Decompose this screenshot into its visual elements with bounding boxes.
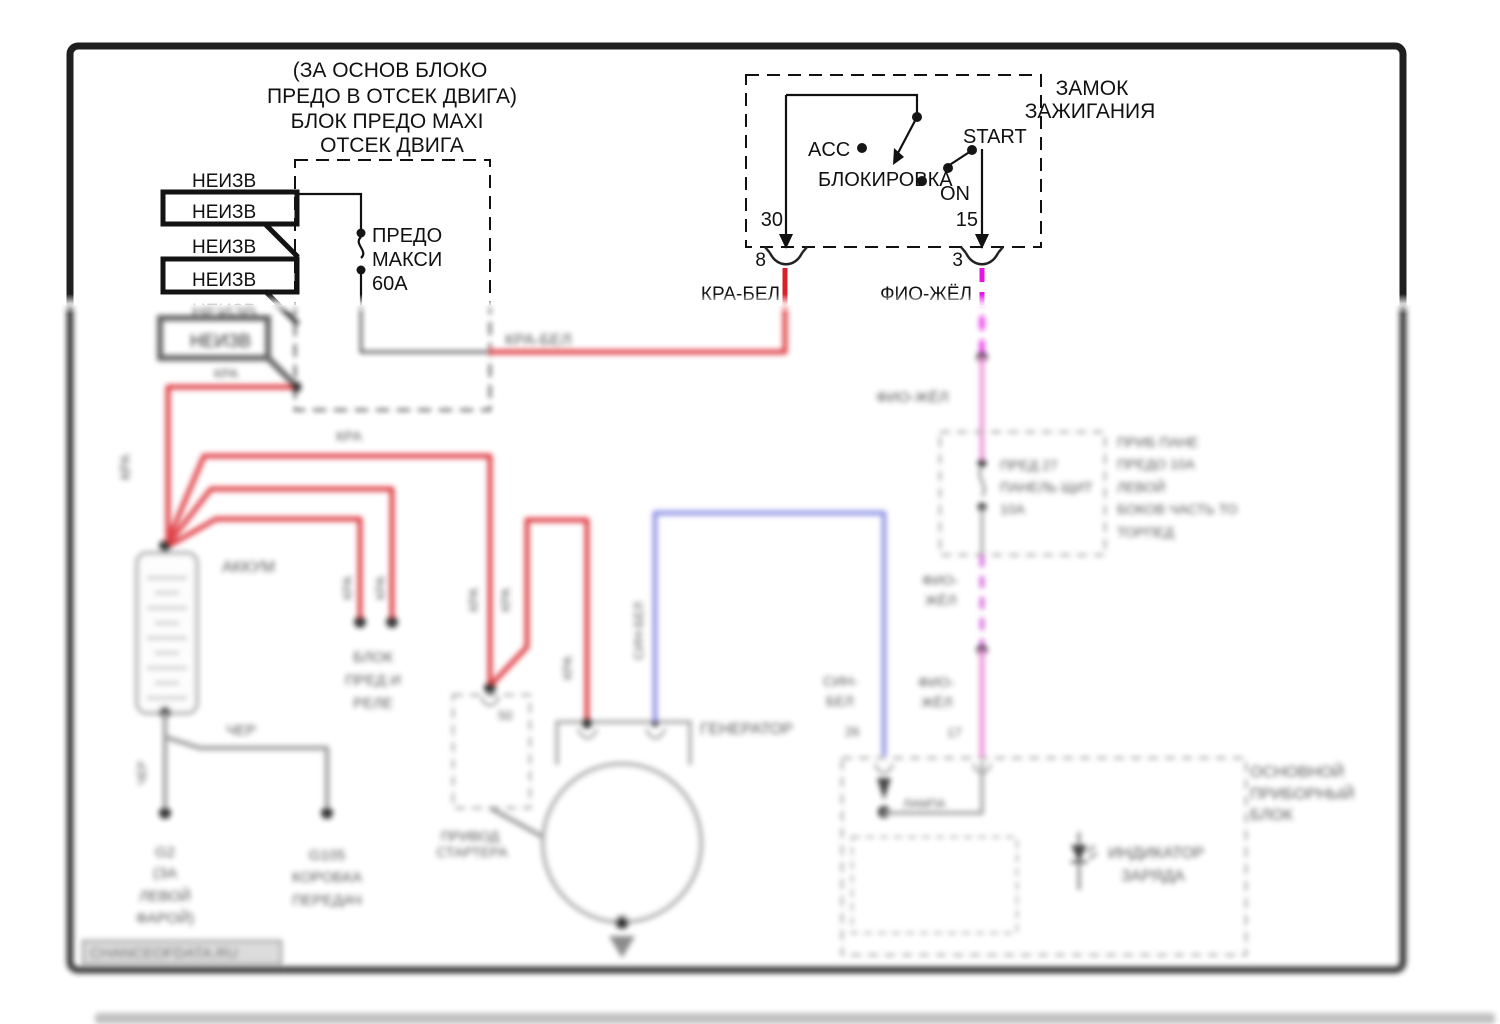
wiring-diagram-page: (ЗА ОСНОВ БЛОКО ПРЕДО В ОТСЕК ДВИГА) БЛО… — [0, 0, 1500, 1024]
diagram-sharp-layer — [70, 46, 1495, 1024]
blur-transition-band — [60, 294, 1420, 314]
wiring-diagram-canvas: (ЗА ОСНОВ БЛОКО ПРЕДО В ОТСЕК ДВИГА) БЛО… — [0, 0, 1500, 1024]
